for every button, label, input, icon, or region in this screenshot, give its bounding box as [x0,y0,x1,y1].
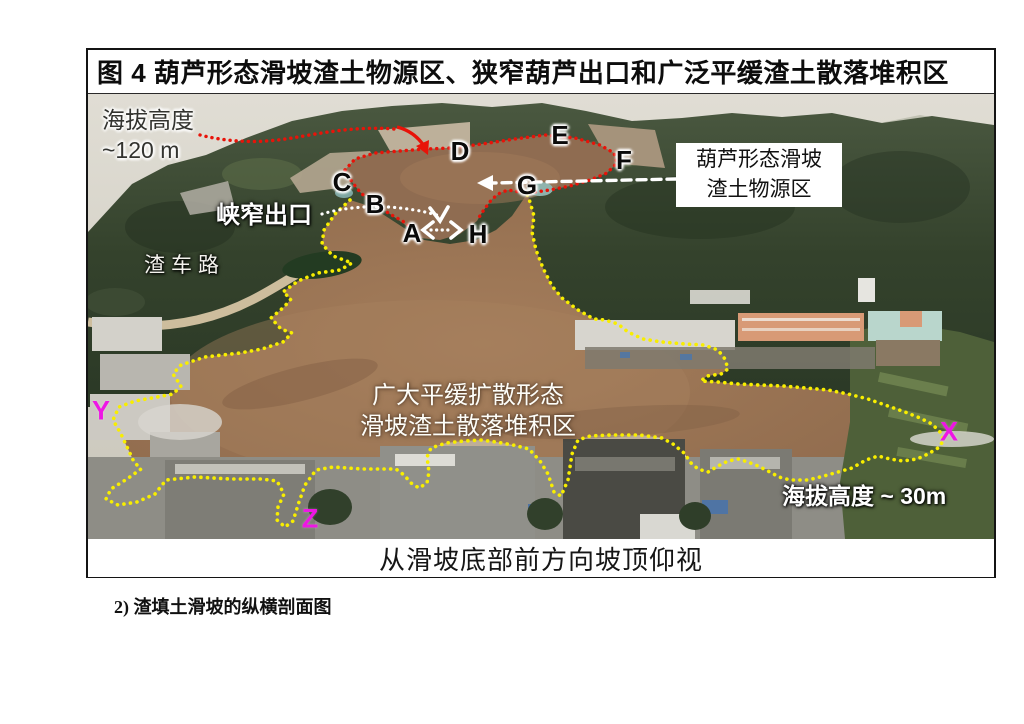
roof-ridge [742,318,860,321]
point-marker-C: C [333,169,352,195]
section-marker-X: X [940,419,958,446]
subsection-heading: 2) 渣填土滑坡的纵横剖面图 [114,593,332,619]
point-marker-F: F [616,147,632,173]
rubble [138,404,222,440]
view-caption: 从滑坡底部前方向坡顶仰视 [379,540,703,577]
landslide-aerial-photo: 海拔高度 ~120 m 峡窄出口 渣车路 葫芦形态滑坡 渣土物源区 广大平缓扩散… [88,94,994,539]
deposit-zone-line1: 广大平缓扩散形态 [340,380,596,411]
section-marker-Y: Y [92,398,110,425]
point-marker-H: H [469,221,488,247]
view-caption-strip: 从滑坡底部前方向坡顶仰视 [88,539,994,577]
forest-shade [830,151,970,223]
narrow-outlet-label: 峡窄出口 [216,200,312,231]
elevation-bottom-label: 海拔高度 ~ 30m [782,482,946,512]
point-marker-B: B [366,191,385,217]
debris [575,457,675,471]
point-marker-A: A [403,220,422,246]
figure-title-bar: 图 4 葫芦形态滑坡渣土物源区、狭窄葫芦出口和广泛平缓渣土散落堆积区 [88,50,994,94]
rubble [876,340,940,366]
source-zone-callout-box: 葫芦形态滑坡 渣土物源区 [676,143,842,207]
building [690,290,750,304]
truck-road-label: 渣车路 [144,252,225,279]
white-tower [858,278,875,302]
source-zone-line2: 渣土物源区 [676,175,842,205]
photo-graphics [88,94,994,539]
orange-roof-warehouse [738,313,864,341]
blue-tarp [620,352,630,358]
photo-terrain [88,94,994,539]
section-marker-Z: Z [302,506,319,533]
source-zone-line1: 葫芦形态滑坡 [676,145,842,175]
deposit-zone-label: 广大平缓扩散形态 滑坡渣土散落堆积区 [340,380,596,442]
elevation-top-line2: ~120 m [102,136,194,166]
roof [175,464,305,474]
forest-light [222,158,302,190]
trees [527,498,563,530]
figure-4-frame: 图 4 葫芦形态滑坡渣土物源区、狭窄葫芦出口和广泛平缓渣土散落堆积区 [86,48,996,578]
trees [679,502,711,530]
blue-tarp [680,354,692,360]
elevation-top-label: 海拔高度 ~120 m [102,106,194,166]
roof [710,457,780,469]
building [92,317,162,351]
page: { "figure": { "title": "图 4 葫芦形态滑坡渣土物源区、… [0,0,1024,724]
deposit-zone-line2: 滑坡渣土散落堆积区 [340,411,596,442]
point-marker-E: E [551,122,568,148]
roof [900,311,922,327]
roof [395,454,455,466]
point-marker-G: G [517,172,537,198]
warehouse [575,320,735,350]
point-marker-D: D [451,138,470,164]
elevation-top-line1: 海拔高度 [102,106,194,136]
figure-title: 图 4 葫芦形态滑坡渣土物源区、狭窄葫芦出口和广泛平缓渣土散落堆积区 [88,53,949,90]
roof-ridge [742,328,860,331]
